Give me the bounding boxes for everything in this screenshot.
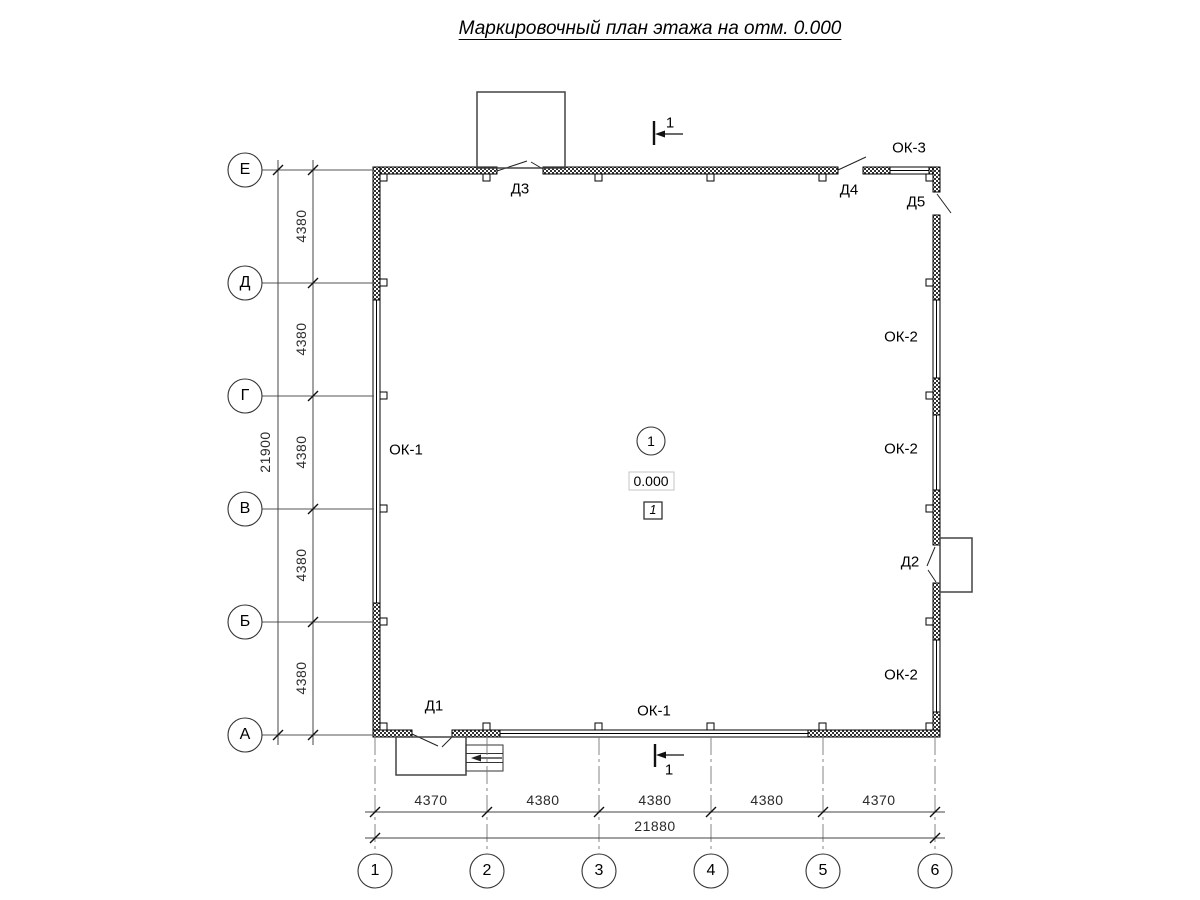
window-mark-ok2-top: ОК-2 bbox=[884, 329, 918, 346]
room-zone-number: 1 bbox=[650, 503, 657, 517]
axis-row-g: Г bbox=[241, 387, 250, 405]
axis-lines-left bbox=[262, 170, 374, 735]
dim-bottom-seg-2: 4380 bbox=[526, 792, 559, 808]
drawing-title: Маркировочный план этажа на отм. 0.000 bbox=[459, 18, 842, 40]
wall-right-3 bbox=[933, 378, 940, 415]
axis-col-3: 3 bbox=[595, 862, 604, 880]
wall-right-1 bbox=[933, 167, 940, 192]
door-mark-d1: Д1 bbox=[425, 698, 444, 715]
wall-bottom-1 bbox=[373, 730, 412, 737]
door-d2-leaf bbox=[927, 547, 936, 582]
door-d4-leaf bbox=[838, 157, 866, 170]
door-mark-d2: Д2 bbox=[901, 554, 920, 571]
wall-top-2 bbox=[543, 167, 838, 174]
axis-bubbles bbox=[228, 153, 952, 888]
dim-left-seg-5: 4380 bbox=[293, 661, 309, 694]
wall-left-2 bbox=[373, 603, 380, 737]
wall-bottom-2 bbox=[452, 730, 500, 737]
dim-left-seg-1: 4380 bbox=[293, 209, 309, 242]
wall-right-5 bbox=[933, 583, 940, 640]
wall-left-1 bbox=[373, 167, 380, 300]
dim-left-seg-2: 4380 bbox=[293, 322, 309, 355]
vestibule-top bbox=[477, 92, 565, 168]
porch-right bbox=[940, 538, 972, 592]
axis-row-b: Б bbox=[240, 613, 251, 631]
section-label-bottom: 1 bbox=[665, 762, 673, 779]
axis-col-5: 5 bbox=[819, 862, 828, 880]
door-d5-leaf bbox=[937, 194, 951, 213]
floor-plan-canvas: Маркировочный план этажа на отм. 0.000 Е… bbox=[0, 0, 1200, 900]
axis-row-e: Е bbox=[240, 161, 251, 179]
window-ok2-right-bottom bbox=[933, 640, 940, 712]
axis-col-4: 4 bbox=[707, 862, 716, 880]
window-ok1-bottom bbox=[500, 730, 808, 737]
window-mark-ok1-bottom: ОК-1 bbox=[637, 703, 671, 720]
dim-bottom-seg-3: 4380 bbox=[638, 792, 671, 808]
axis-row-a: А bbox=[240, 726, 251, 744]
door-mark-d3: Д3 bbox=[511, 181, 530, 198]
axis-col-6: 6 bbox=[931, 862, 940, 880]
window-mark-ok1-left: ОК-1 bbox=[389, 442, 423, 459]
wall-top-3 bbox=[863, 167, 890, 174]
axis-col-2: 2 bbox=[483, 862, 492, 880]
door-mark-d4: Д4 bbox=[840, 182, 859, 199]
room-elevation: 0.000 bbox=[633, 473, 668, 489]
door-mark-d5: Д5 bbox=[907, 194, 926, 211]
window-ok2-right-middle bbox=[933, 415, 940, 490]
axis-row-d: Д bbox=[240, 274, 251, 292]
wall-right-2 bbox=[933, 215, 940, 300]
dim-left-seg-4: 4380 bbox=[293, 548, 309, 581]
dim-bottom-seg-5: 4370 bbox=[862, 792, 895, 808]
window-mark-ok2-bottom: ОК-2 bbox=[884, 667, 918, 684]
room-number: 1 bbox=[647, 433, 655, 449]
dim-left-seg-3: 4380 bbox=[293, 435, 309, 468]
window-ok1-left bbox=[373, 300, 380, 603]
window-mark-ok3: ОК-3 bbox=[892, 140, 926, 157]
dim-bottom-seg-1: 4370 bbox=[414, 792, 447, 808]
section-label-top: 1 bbox=[666, 115, 674, 132]
dim-bottom-seg-4: 4380 bbox=[750, 792, 783, 808]
dim-bottom-total: 21880 bbox=[634, 818, 675, 834]
window-mark-ok2-middle: ОК-2 bbox=[884, 441, 918, 458]
dim-left-total: 21900 bbox=[257, 431, 273, 472]
door-d3-leaf bbox=[497, 161, 543, 171]
axis-col-1: 1 bbox=[371, 862, 380, 880]
door-d1-leaf bbox=[412, 734, 452, 747]
window-ok3-top bbox=[890, 167, 929, 174]
plan-drawing bbox=[0, 0, 1200, 900]
entrance-arrow bbox=[471, 755, 502, 762]
window-ok2-right-top bbox=[933, 300, 940, 378]
wall-right-4 bbox=[933, 490, 940, 545]
wall-bottom-3 bbox=[808, 730, 940, 737]
axis-row-v: В bbox=[240, 500, 251, 518]
door-symbols bbox=[412, 157, 951, 747]
